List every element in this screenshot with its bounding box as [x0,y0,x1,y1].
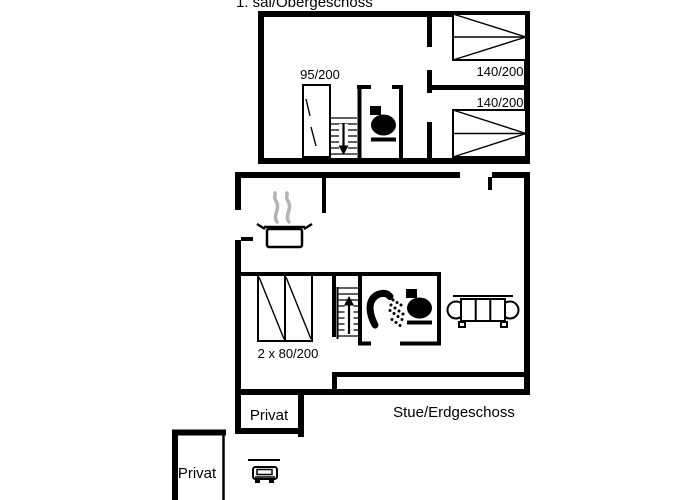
bed-top-size-label: 140/200 [477,64,524,79]
shower-icon [370,293,404,327]
upper-floor: 1. sal/Obergeschoss 95/200 [236,0,527,161]
double-bed-icon [453,14,526,60]
privat-room: Privat [235,392,304,437]
car-icon [248,460,280,483]
wardrobe-size-label: 95/200 [300,67,340,82]
sofa-icon [448,296,519,327]
floor-plan-canvas: 1. sal/Obergeschoss 95/200 [0,0,700,500]
bed-bottom-size-label: 140/200 [477,95,524,110]
bunk-size-label: 2 x 80/200 [258,346,319,361]
toilet-icon-upper [370,106,396,142]
stairs-up-icon [338,287,361,339]
floor-plan: 1. sal/Obergeschoss 95/200 [0,0,700,500]
bunk-bed-icon [258,275,312,341]
double-bed-icon [453,110,526,157]
ground-floor-title: Stue/Erdgeschoss [393,404,515,421]
upper-floor-title: 1. sal/Obergeschoss [236,0,373,11]
stairs-down-icon [331,118,357,155]
wardrobe-icon [303,85,330,157]
cooking-pot-icon [257,193,312,247]
carport-annex: Privat [172,430,280,500]
toilet-icon-ground [406,289,432,325]
privat-room-label: Privat [250,407,289,424]
ground-floor: 2 x 80/200 [235,172,530,421]
privat-carport-label: Privat [178,465,217,482]
